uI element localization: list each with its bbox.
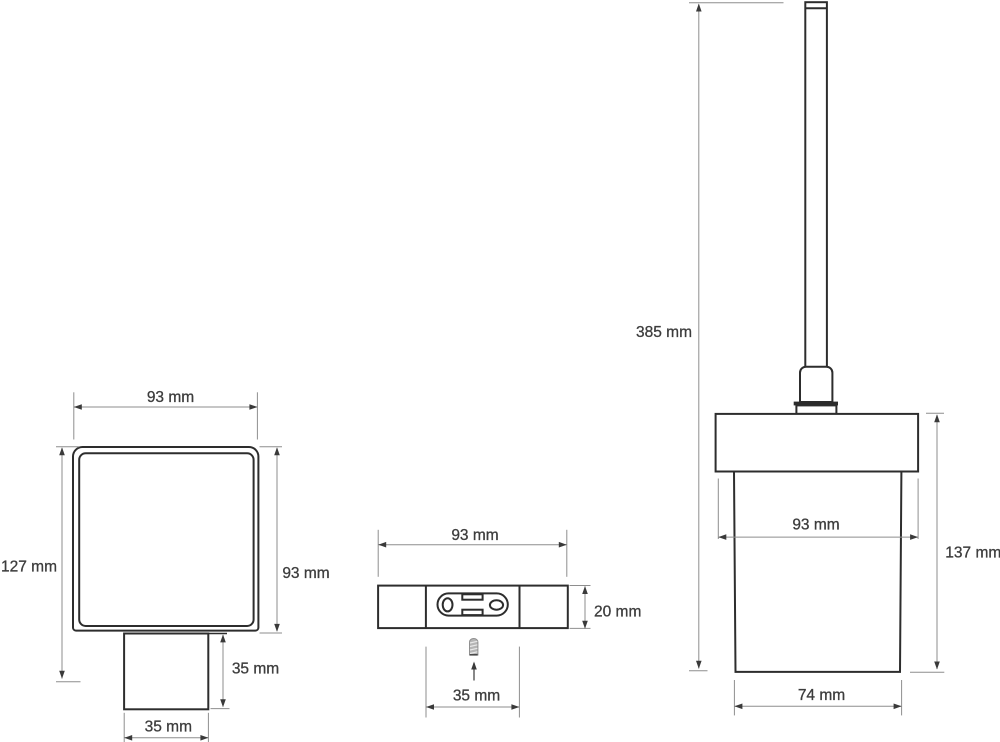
svg-text:137 mm: 137 mm — [945, 545, 1000, 562]
svg-text:93 mm: 93 mm — [147, 389, 194, 406]
svg-text:127 mm: 127 mm — [1, 559, 57, 576]
svg-text:93 mm: 93 mm — [282, 565, 329, 582]
svg-text:385 mm: 385 mm — [636, 324, 692, 341]
svg-text:74 mm: 74 mm — [798, 687, 845, 704]
svg-text:93 mm: 93 mm — [792, 517, 839, 534]
svg-text:93 mm: 93 mm — [451, 527, 498, 544]
svg-text:20 mm: 20 mm — [594, 604, 641, 621]
svg-text:35 mm: 35 mm — [232, 660, 279, 677]
svg-text:35 mm: 35 mm — [453, 687, 500, 704]
svg-text:35 mm: 35 mm — [145, 719, 192, 736]
